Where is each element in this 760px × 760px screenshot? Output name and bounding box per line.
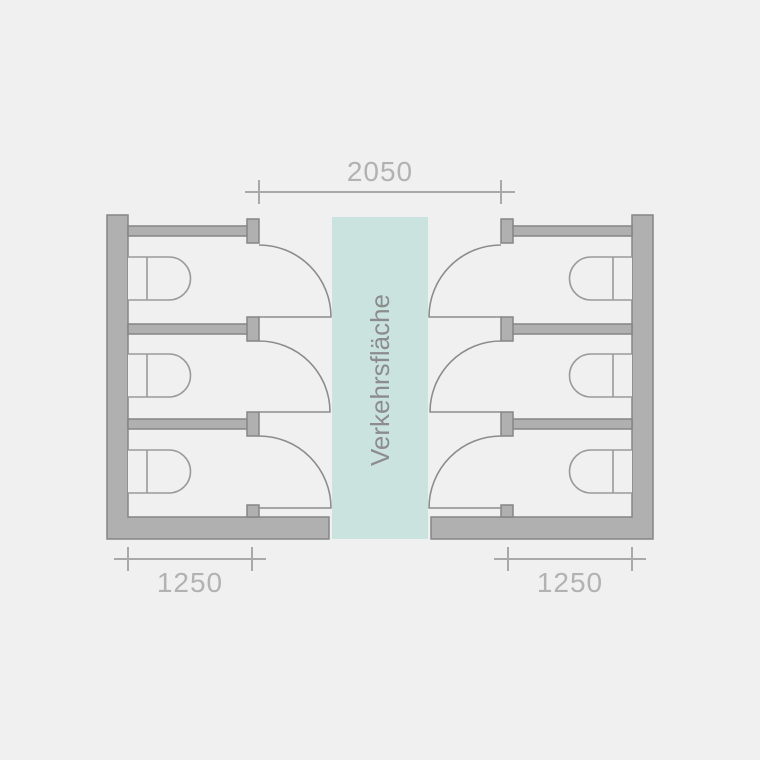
door-post (247, 505, 259, 517)
corridor-label: Verkehrsfläche (365, 294, 395, 466)
toilet-fixture (128, 257, 191, 300)
toilet-fixture (570, 450, 633, 493)
stall-partition (128, 226, 248, 236)
door-post (501, 505, 513, 517)
door-post (247, 219, 259, 243)
door-post (247, 412, 259, 436)
floorplan-svg: Verkehrsfläche (0, 0, 760, 760)
stall-partition (128, 324, 248, 334)
door-post (247, 317, 259, 341)
dimension-value: 1250 (157, 567, 223, 598)
dimension-value: 2050 (347, 156, 413, 187)
toilet-fixture (570, 257, 633, 300)
dimension-value: 1250 (537, 567, 603, 598)
stall-partition (512, 226, 632, 236)
toilet-fixture (128, 354, 191, 397)
door-post (501, 219, 513, 243)
stall-partition (128, 419, 248, 429)
floorplan-canvas: Verkehrsfläche (0, 0, 760, 760)
door-post (501, 412, 513, 436)
stall-partition (512, 324, 632, 334)
toilet-fixture (128, 450, 191, 493)
door-post (501, 317, 513, 341)
stall-partition (512, 419, 632, 429)
toilet-fixture (570, 354, 633, 397)
